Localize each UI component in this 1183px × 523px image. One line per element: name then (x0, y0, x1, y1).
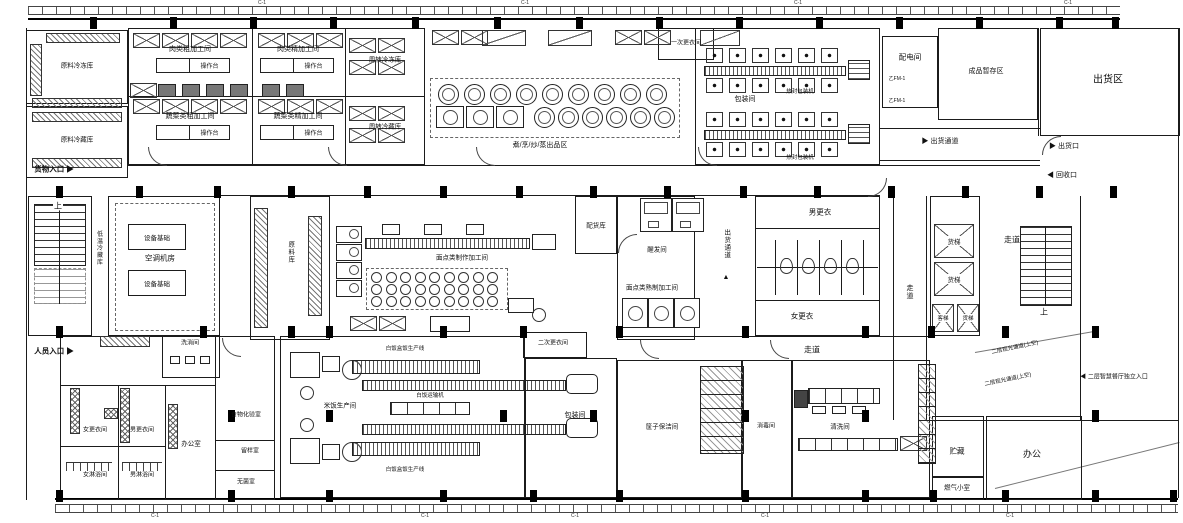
insulated-wall (168, 404, 178, 449)
column (976, 17, 983, 29)
outer-wall-right-lower (1178, 136, 1179, 498)
packing-station (706, 142, 723, 157)
basket-rack (918, 364, 936, 464)
table-label: 操作台 (294, 59, 333, 72)
column (500, 410, 507, 422)
hopper (322, 356, 340, 372)
packing-station (752, 142, 769, 157)
cooking-kettle (654, 107, 675, 128)
corridor-label: 走道 (1004, 235, 1020, 244)
column (814, 186, 821, 198)
hand-wash-sink (185, 356, 195, 364)
storage-rack (30, 44, 42, 96)
stall-partition (757, 267, 878, 268)
rice-cooker-unit (290, 352, 320, 378)
table-cell (157, 126, 190, 139)
column (330, 17, 337, 29)
door-code-label: 乙FM-1 (889, 77, 906, 83)
tilting-pan (436, 106, 464, 128)
room-label-sterile-room: 无菌室 (237, 480, 255, 487)
column (326, 410, 333, 422)
mixer (300, 418, 314, 432)
stairs-right (1020, 226, 1072, 306)
freight-elevator-2: 货梯 (934, 262, 974, 296)
stair-rail (1045, 226, 1046, 306)
cooking-kettle (568, 84, 589, 105)
cooking-kettle (630, 107, 651, 128)
steam-basket (386, 296, 397, 307)
column (56, 186, 63, 198)
grid-tick: C-1 (258, 0, 266, 6)
work-table (350, 316, 377, 331)
sink-unit (182, 84, 200, 97)
steam-basket (400, 284, 411, 295)
steam-basket (371, 272, 382, 283)
room-label-veg-fine: 蔬菜类精加工间 (274, 113, 323, 121)
annotation-second-floor-entrance: ◀ 二层智慧餐厅独立入口 (1080, 375, 1148, 382)
outer-wall-top (28, 18, 1120, 20)
wall (215, 470, 275, 471)
shower-heads (122, 462, 162, 471)
column (288, 326, 295, 338)
column (494, 17, 501, 29)
proofing-cabinet (672, 198, 704, 232)
room-label-power: 配电间 (899, 54, 922, 63)
column (816, 17, 823, 29)
corridor-label: 走道 (905, 284, 913, 300)
steam-basket (473, 296, 484, 307)
room-label-rice-production: 米饭生产间 (323, 402, 358, 409)
insulated-wall (120, 388, 130, 443)
packing-station (798, 112, 815, 127)
packing-conveyor (704, 66, 846, 76)
basket-rack (700, 366, 744, 454)
annotation-shipping-passage-2: 出货通道 (722, 229, 729, 259)
passenger-elevator: 客梯 (932, 304, 954, 332)
work-table (378, 106, 405, 121)
wall (165, 385, 166, 500)
packing-station (821, 78, 838, 93)
room-label-noodle-cooking: 面点类熟制加工间 (626, 284, 678, 291)
packing-conveyor (704, 130, 846, 140)
column (1092, 490, 1099, 502)
wall (1080, 196, 1081, 420)
room-label-sample-room: 留样室 (241, 449, 259, 456)
wall (60, 446, 165, 447)
rice-line-conveyor (362, 380, 566, 391)
arrow-left-icon: ◀ (1047, 172, 1054, 179)
column (656, 17, 663, 29)
sealing-machine (848, 60, 870, 80)
sink-unit (206, 84, 224, 97)
room-label-ac: 空调机房 (144, 255, 176, 264)
work-table (191, 99, 218, 114)
cooking-kettle (516, 84, 537, 105)
cooking-kettle (646, 84, 667, 105)
room-label-finished-staging: 成品暂存区 (969, 68, 1004, 76)
rice-transfer-machine (390, 402, 470, 415)
column (862, 326, 869, 338)
steam-basket (458, 284, 469, 295)
pass-window (700, 30, 740, 46)
column (136, 186, 143, 198)
storage-rack (100, 336, 150, 347)
toilet (802, 258, 815, 274)
grid-tick: C-1 (794, 0, 802, 6)
dough-machine (532, 234, 556, 250)
steam-basket (415, 272, 426, 283)
wall (755, 300, 880, 301)
steam-basket (415, 284, 426, 295)
equip-label-rice-conveyor: 白饭运输机 (416, 393, 444, 399)
work-table (220, 99, 247, 114)
room-label-packing: 包装间 (735, 96, 756, 104)
storage-rack (32, 112, 122, 122)
work-table (133, 33, 160, 48)
column (736, 17, 743, 29)
column (170, 17, 177, 29)
work-table (316, 99, 343, 114)
freight-elevator-3: 货梯 (957, 304, 979, 332)
toilet (824, 258, 837, 274)
insulated-wall (104, 408, 118, 419)
rice-line-conveyor (352, 442, 480, 456)
dough-conveyor (365, 238, 530, 249)
column (250, 17, 257, 29)
room-label-raw-storage: 原料库 (286, 241, 293, 264)
steam-basket (371, 284, 382, 295)
cooking-kettle (620, 84, 641, 105)
packing-station (729, 142, 746, 157)
packing-station (821, 48, 838, 63)
column (590, 186, 597, 198)
column (962, 186, 969, 198)
dough-unit (466, 224, 484, 235)
line-end-machine (566, 374, 598, 394)
steam-basket (444, 272, 455, 283)
column (1002, 326, 1009, 338)
annotation-goods-entrance: 货物入口 ▶ (34, 166, 74, 175)
room-label-meat-fine: 肉类精加工间 (277, 46, 319, 54)
dishwasher-leg (832, 406, 846, 414)
steam-basket (371, 296, 382, 307)
wall (60, 385, 215, 386)
soy-milk-tank (336, 244, 362, 261)
column (520, 326, 527, 338)
room-label-office2: 办公 (1023, 449, 1041, 459)
equip-label-rice-line: 白饭盒饭生产线 (386, 467, 425, 473)
wash-conveyor (798, 438, 898, 451)
steam-basket (429, 284, 440, 295)
tilting-pan (496, 106, 524, 128)
sink-unit (286, 84, 304, 97)
operating-table-box: 操作台 (260, 125, 334, 140)
table-label: 操作台 (190, 126, 229, 139)
column (440, 186, 447, 198)
room-label-men-shower: 男淋浴间 (130, 473, 154, 480)
arrow-right-icon: ▶ (66, 165, 74, 174)
door-arc (868, 178, 887, 197)
hopper (322, 444, 340, 460)
dishwasher-leg (812, 406, 826, 414)
wall (128, 165, 1040, 166)
packing-station (729, 48, 746, 63)
steam-basket (473, 284, 484, 295)
wall (118, 385, 119, 500)
work-table (258, 99, 285, 114)
column (740, 186, 747, 198)
cooking-kettle (490, 84, 511, 105)
wall (1038, 28, 1039, 136)
robot-cell (508, 298, 534, 313)
freight-elevator-1: 货梯 (934, 224, 974, 258)
grid-tick: C-1 (1006, 513, 1014, 519)
wall (880, 128, 1040, 129)
freight-elevator-label: 货梯 (947, 274, 962, 284)
work-table (379, 316, 406, 331)
column (516, 186, 523, 198)
column (90, 17, 97, 29)
column (530, 490, 537, 502)
cooking-kettle (438, 84, 459, 105)
grid-tick: C-1 (1064, 0, 1072, 6)
work-table (287, 99, 314, 114)
column (440, 490, 447, 502)
room-label-men-changing: 男更衣间 (130, 428, 154, 435)
column (326, 326, 333, 338)
grid-tick: C-1 (421, 513, 429, 519)
table-label: 操作台 (294, 126, 333, 139)
arrow-left-icon: ◀ (1080, 375, 1086, 381)
room-label-raw-freezer: 原料冷冻库 (61, 62, 94, 69)
column (888, 186, 895, 198)
column (1092, 410, 1099, 422)
steam-basket (386, 284, 397, 295)
work-bench (430, 316, 470, 332)
work-table (432, 30, 459, 45)
storage-rack (254, 208, 268, 328)
column (862, 410, 869, 422)
sink-unit (230, 84, 248, 97)
room-label-lowtemp-storage: 低温冷藏库 (95, 231, 102, 266)
freight-elevator-label: 货梯 (961, 314, 974, 322)
column (1170, 490, 1177, 502)
arrow-up-icon: ▲ (723, 274, 730, 282)
equip-label-heat-seal: 热封包装机 (786, 155, 814, 161)
column (288, 186, 295, 198)
storage-rack (46, 33, 120, 43)
cooking-kettle (582, 107, 603, 128)
cooking-kettle (542, 84, 563, 105)
column (616, 490, 623, 502)
column (742, 490, 749, 502)
column (200, 326, 207, 338)
insulated-wall (70, 388, 80, 434)
table-cell (157, 59, 190, 72)
packing-station (752, 112, 769, 127)
column (1002, 490, 1009, 502)
work-table (378, 38, 405, 53)
room-label-turnover-chiller: 周转冷藏库 (369, 123, 402, 130)
column (1056, 17, 1063, 29)
steam-basket (415, 296, 426, 307)
room-label-first-changing: 一次更衣间 (671, 41, 701, 48)
sink-unit (262, 84, 280, 97)
door-code-label: 乙FM-1 (889, 99, 906, 105)
cooking-kettle (558, 107, 579, 128)
room-label-goods-storage: 配货库 (586, 222, 606, 229)
annotation-shipping-port: ▶ 出货口 (1049, 143, 1079, 151)
column (616, 326, 623, 338)
proofing-cabinet (640, 198, 672, 232)
room-label-disinfection: 消毒间 (757, 424, 775, 431)
bottom-grid-band (55, 504, 1178, 513)
column (326, 490, 333, 502)
column (742, 326, 749, 338)
room-ac (108, 196, 220, 336)
hand-wash-sink (170, 356, 180, 364)
steam-basket (400, 272, 411, 283)
column (440, 326, 447, 338)
column (862, 490, 869, 502)
annotation-personnel-entrance: 人员入口 ▶ (34, 348, 74, 357)
rice-line-conveyor (362, 424, 566, 435)
annotation-recycle-port: ◀ 回收口 (1047, 172, 1077, 180)
door-arc (476, 147, 495, 166)
freight-elevator-label: 货梯 (947, 236, 962, 246)
work-table (349, 106, 376, 121)
rice-steamer (648, 298, 674, 328)
stairs-left-lower (34, 268, 86, 304)
steam-basket (429, 272, 440, 283)
room-label-proofing: 醒发间 (647, 246, 667, 253)
room-label-office-room: 办公室 (181, 440, 201, 447)
operating-table-box: 操作台 (156, 125, 230, 140)
stairs-left (34, 204, 86, 266)
room-label-storage: 贮藏 (950, 448, 965, 457)
room-label-women-shower: 女淋浴间 (83, 473, 107, 480)
sink-unit (158, 84, 176, 97)
room-label-shipping-area: 出货区 (1093, 74, 1123, 86)
operating-table-box: 操作台 (260, 58, 334, 73)
column (1036, 186, 1043, 198)
pass-window (482, 30, 526, 46)
steam-basket (386, 272, 397, 283)
wall (755, 228, 880, 229)
equip-base-1: 设备基础 (128, 224, 186, 250)
packing-station (775, 112, 792, 127)
column (228, 490, 235, 502)
packing-station (706, 78, 723, 93)
room-label-washing: 清洗间 (830, 423, 850, 430)
room-washing (792, 360, 930, 498)
storage-rack (308, 216, 322, 316)
hand-wash-sink (200, 356, 210, 364)
work-table (615, 30, 642, 45)
door-arc (640, 340, 659, 359)
wall (880, 160, 1040, 161)
steam-basket (429, 296, 440, 307)
zone-label-cooking: 煮/烹/炒/蒸出品区 (512, 142, 569, 150)
grid-tick: C-1 (521, 0, 529, 6)
room-label-noodle-making: 面点类制作加工间 (435, 254, 489, 261)
door-arc (770, 340, 789, 359)
column (364, 186, 371, 198)
steam-basket (458, 272, 469, 283)
arrow-right-icon: ▶ (66, 347, 74, 356)
packing-station (821, 142, 838, 157)
room-label-turnover-freezer: 周转冷冻库 (369, 56, 402, 63)
column (590, 410, 597, 422)
grid-tick: C-1 (151, 513, 159, 519)
work-table (349, 38, 376, 53)
room-label-wash-sanitize: 洗消间 (181, 341, 199, 348)
table-cell (261, 126, 294, 139)
work-table (220, 33, 247, 48)
rice-cooker-unit (290, 438, 320, 464)
equip-label-rice-line: 白饭盒饭生产线 (386, 346, 425, 352)
annotation-shipping-passage: ▶ 出货通道 (922, 138, 959, 146)
dough-unit (424, 224, 442, 235)
steam-basket (444, 284, 455, 295)
column (930, 490, 937, 502)
room-label-raw-chiller: 原料冷藏库 (61, 136, 94, 143)
room-label-gas: 燃气小室 (944, 484, 970, 491)
room-label-basket-cleaning: 筐子保洁间 (646, 423, 679, 430)
steam-basket (487, 272, 498, 283)
grid-tick: C-1 (761, 513, 769, 519)
steam-basket (458, 296, 469, 307)
steam-basket (487, 296, 498, 307)
wall (617, 336, 930, 337)
column (412, 17, 419, 29)
packing-station (752, 78, 769, 93)
packing-station (821, 112, 838, 127)
column (928, 326, 935, 338)
work-table (162, 99, 189, 114)
soy-milk-tank (336, 262, 362, 279)
column (56, 490, 63, 502)
room-label-packing2: 包装间 (565, 412, 586, 420)
stairs-up-label: 上 (53, 201, 63, 210)
corridor-label: 走道 (804, 345, 820, 354)
room-label-meat-rough: 肉类粗加工间 (169, 46, 211, 54)
column (1110, 186, 1117, 198)
rice-line-conveyor (352, 360, 480, 374)
dishwasher-head (794, 390, 808, 408)
column (896, 17, 903, 29)
packing-station (706, 48, 723, 63)
room-label-women-changing-hall: 女更衣 (791, 313, 814, 322)
arrow-right-icon: ▶ (922, 138, 929, 145)
work-table (644, 30, 671, 45)
cooking-kettle (594, 84, 615, 105)
toilet (780, 258, 793, 274)
pass-window (548, 30, 592, 46)
packing-station (729, 112, 746, 127)
column (664, 186, 671, 198)
table-label: 操作台 (190, 59, 229, 72)
cooking-kettle (534, 107, 555, 128)
steam-basket (487, 284, 498, 295)
room-label-veg-rough: 蔬菜类粗加工间 (166, 113, 215, 121)
shower-heads (66, 462, 112, 471)
observation-note: 二层观光通道(上空) (991, 340, 1039, 356)
equip-label-heat-seal: 热封包装机 (786, 89, 814, 95)
rice-steamer (622, 298, 648, 328)
soy-milk-tank (336, 226, 362, 243)
soy-milk-tank (336, 280, 362, 297)
